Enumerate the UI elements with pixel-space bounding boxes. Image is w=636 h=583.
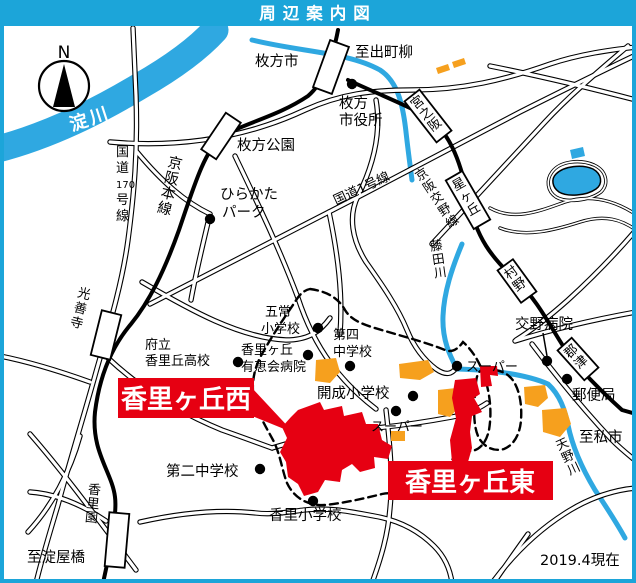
poi-dot-kaisei — [408, 391, 418, 401]
label-daishi-2: 中学校 — [333, 344, 372, 360]
poi-dot-cityhall — [347, 79, 357, 89]
label-hirakata-city: 枚方市 — [255, 53, 299, 70]
poi-dot-super-west — [391, 406, 401, 416]
label-post-office: 郵便局 — [572, 387, 616, 404]
area-guide-map: 宮之阪 星ヶ丘 村野 郡津 枚方市 至出町柳 枚方 市役所 枚方公園 ひらかた … — [0, 0, 636, 583]
poi-dot-daishi — [345, 361, 355, 371]
label-koko-2: 香里丘高校 — [145, 353, 210, 369]
label-hirakata-koen: 枚方公園 — [237, 137, 295, 154]
label-to-yodoyabashi: 至淀屋橋 — [27, 549, 85, 566]
map-canvas: 宮之阪 星ヶ丘 村野 郡津 枚方市 至出町柳 枚方 市役所 枚方公園 ひらかた … — [0, 0, 636, 583]
label-to-kisaichi: 至私市 — [579, 429, 623, 446]
label-kaisei: 開成小学校 — [317, 385, 390, 402]
label-gojo-2: 小学校 — [261, 321, 300, 337]
poi-dot-yukei — [303, 350, 313, 360]
label-super-east: スーパー — [466, 360, 518, 375]
label-koko-1: 府立 — [145, 338, 171, 353]
label-cityhall-2: 市役所 — [339, 112, 383, 129]
label-yukei-2: 有恵会病院 — [241, 360, 306, 375]
poi-dot-hirapark — [205, 214, 215, 224]
label-super-west: スーパー — [371, 420, 423, 435]
label-katano-hospital: 交野病院 — [515, 315, 573, 333]
label-hirapark-2: パーク — [222, 204, 266, 221]
poi-dot-post-office — [562, 374, 572, 384]
poi-dot-daini — [255, 464, 265, 474]
poi-dot-super-east — [452, 361, 462, 371]
poi-dot-kori-elementary — [308, 496, 318, 506]
label-to-demachiyanagi: 至出町柳 — [355, 44, 413, 61]
compass-north-label: N — [58, 43, 71, 63]
banner-east-label: 香里ヶ丘東 — [405, 468, 535, 498]
label-daishi-1: 第四 — [333, 328, 359, 343]
label-daini: 第二中学校 — [166, 462, 239, 480]
label-hirapark-1: ひらかた — [220, 186, 278, 203]
station-box-korien — [105, 512, 130, 568]
page-title: 周辺案内図 — [259, 3, 377, 23]
poi-dot-gojo — [313, 323, 323, 333]
banner-east: 香里ヶ丘東 — [388, 461, 553, 500]
label-cityhall-1: 枚方 — [339, 95, 368, 112]
poi-dot-katano-hospital — [542, 356, 552, 366]
note-date: 2019.4現在 — [540, 552, 620, 569]
label-yukei-1: 香里ヶ丘 — [241, 343, 293, 358]
label-gojo-1: 五常 — [265, 305, 291, 320]
banner-west-label: 香里ヶ丘西 — [121, 385, 251, 415]
label-kori-elementary: 香里小学校 — [269, 507, 342, 524]
